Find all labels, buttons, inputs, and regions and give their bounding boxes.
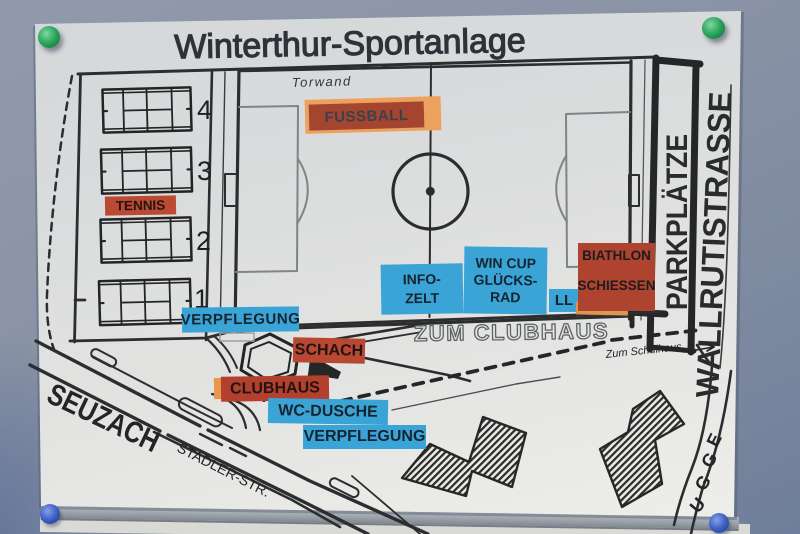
svg-text:STADLER-STR.: STADLER-STR. bbox=[175, 439, 273, 500]
svg-text:G: G bbox=[697, 449, 721, 471]
svg-text:2: 2 bbox=[196, 226, 211, 256]
svg-text:G: G bbox=[691, 471, 715, 494]
svg-text:U: U bbox=[686, 494, 710, 517]
svg-text:PARKPLÄTZE: PARKPLÄTZE bbox=[661, 134, 694, 310]
svg-text:Torwand: Torwand bbox=[292, 73, 352, 90]
svg-text:Zum Schulhaus: Zum Schulhaus bbox=[604, 341, 683, 361]
svg-text:E: E bbox=[703, 430, 726, 450]
svg-text:3: 3 bbox=[197, 156, 212, 186]
svg-text:4: 4 bbox=[197, 95, 212, 125]
svg-text:ZUM CLUBHAUS: ZUM CLUBHAUS bbox=[414, 318, 610, 346]
svg-text:SEUZACH: SEUZACH bbox=[42, 378, 165, 459]
